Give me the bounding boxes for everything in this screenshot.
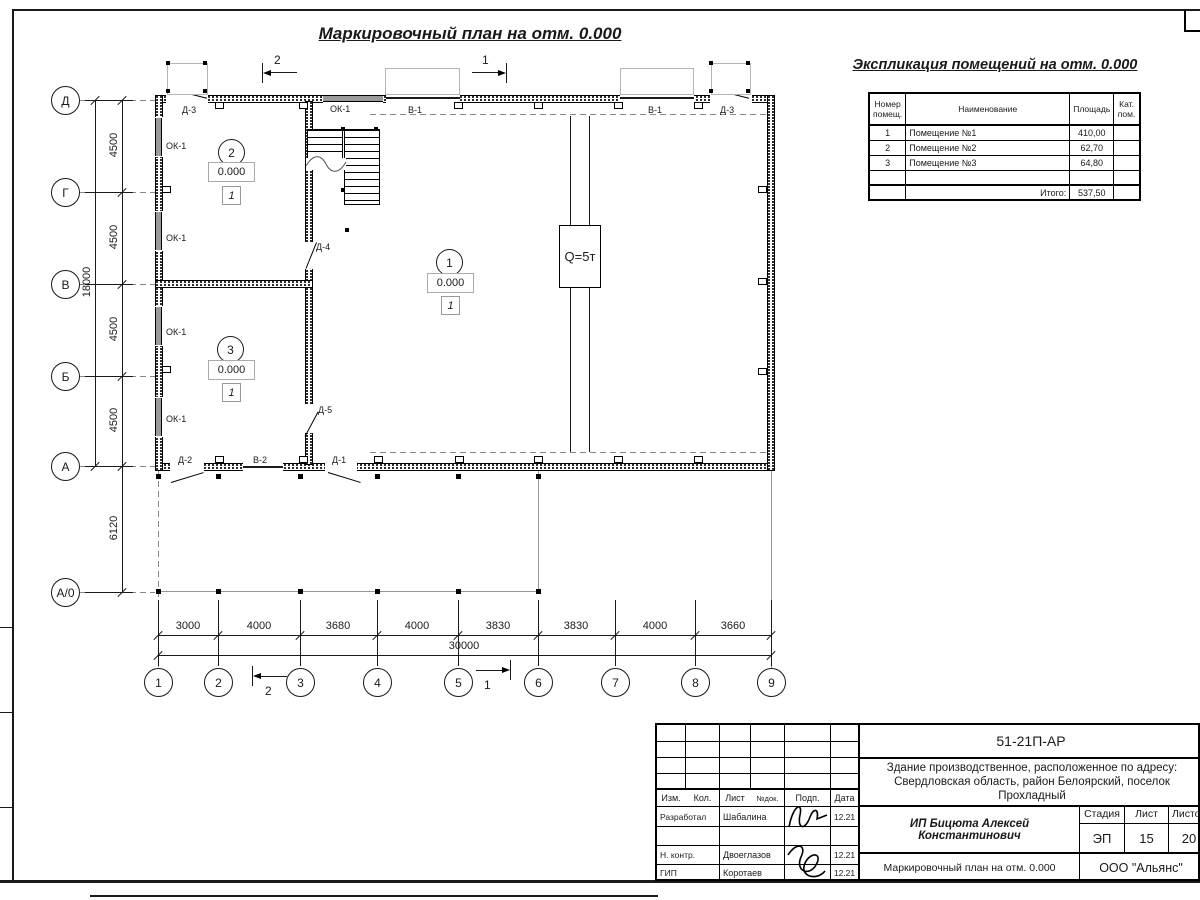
- room-elevation-2: 0.000: [208, 162, 255, 182]
- pilaster: [758, 278, 767, 285]
- corner-dot: [345, 228, 349, 232]
- axis-bubble-row: Г: [51, 178, 80, 207]
- dim-text: 3660: [711, 620, 755, 632]
- column: [536, 474, 541, 479]
- page-title: Маркировочный план на отм. 0.000: [310, 24, 630, 44]
- dim-extension: [85, 376, 133, 377]
- gate-opening-v1-a: [386, 94, 460, 104]
- cell-empty: [906, 170, 1070, 185]
- schedule-header-area: Площадь: [1070, 93, 1114, 125]
- corner-dot: [709, 89, 713, 93]
- dim-text: 4500: [108, 215, 120, 259]
- axis-bubble-col: 2: [204, 668, 233, 697]
- stage-label: Стадия: [1080, 805, 1124, 823]
- gate-leaf-v1-a: [386, 97, 460, 99]
- frame-left: [12, 9, 14, 883]
- signature: [783, 799, 831, 833]
- section-number: 2: [274, 53, 281, 67]
- axis-bubble-row: Б: [51, 362, 80, 391]
- crane-capacity-label: Q=5т: [565, 249, 596, 264]
- room-elevation-3: 0.000: [208, 360, 255, 380]
- dim-text: 3000: [166, 620, 210, 632]
- table-row: 1 Помещение №1 410,00: [869, 125, 1140, 140]
- room-floortype-2: 1: [222, 186, 241, 205]
- schedule-header-num: Номер помещ.: [869, 93, 906, 125]
- schedule-header-name: Наименование: [906, 93, 1070, 125]
- col-izm: Изм.: [657, 790, 685, 806]
- cell-name: Помещение №2: [906, 140, 1070, 155]
- cell-num: 1: [869, 125, 906, 140]
- column: [456, 474, 461, 479]
- table-row-empty: [869, 170, 1140, 185]
- pilaster: [758, 368, 767, 375]
- pilaster: [215, 102, 224, 109]
- stair-break-line: [305, 152, 347, 174]
- margin-cell-line: [0, 712, 13, 713]
- total-value: 537,50: [1070, 185, 1114, 200]
- pilaster: [614, 456, 623, 463]
- window-label-ok1: ОК-1: [166, 233, 186, 243]
- axis-bubble-col: 7: [601, 668, 630, 697]
- dim-line-horizontal-segments: [158, 635, 771, 636]
- dim-text: 3830: [554, 620, 598, 632]
- dim-text: 4500: [108, 307, 120, 351]
- porch: [711, 63, 751, 95]
- cell-empty: [1070, 170, 1114, 185]
- window-label-ok1: ОК-1: [166, 327, 186, 337]
- room-number-text: 2: [228, 146, 235, 160]
- cell-area: 410,00: [1070, 125, 1114, 140]
- axis-bubble-col: 3: [286, 668, 315, 697]
- elevation-text: 0.000: [218, 364, 246, 376]
- axis-bubble-col: 8: [681, 668, 710, 697]
- dim-extension: [85, 284, 133, 285]
- cell-cat: [1114, 155, 1140, 170]
- sheets-label: Листов: [1169, 805, 1200, 823]
- axis-bubble-row: В: [51, 270, 80, 299]
- section-number: 1: [484, 678, 491, 692]
- col-data: Дата: [831, 790, 858, 806]
- gate-leaf-v1-b: [620, 97, 694, 99]
- cell-area: 62,70: [1070, 140, 1114, 155]
- dim-line-vertical-segments: [122, 100, 123, 592]
- column: [216, 474, 221, 479]
- dim-text: 3680: [316, 620, 360, 632]
- cell-name: Помещение №3: [906, 155, 1070, 170]
- crane-symbol: Q=5т: [559, 225, 601, 288]
- object-name: ИП Бицюта Алексей Константинович: [860, 807, 1079, 852]
- cell-empty: [1114, 185, 1140, 200]
- door-label-d3: Д-3: [182, 105, 196, 115]
- dim-line-horizontal-total: [158, 655, 771, 656]
- elevation-text: 0.000: [218, 166, 246, 178]
- door-label-d1: Д-1: [332, 455, 346, 465]
- gate-label-v2: В-2: [253, 455, 267, 465]
- cell-name: Помещение №1: [906, 125, 1070, 140]
- frame-top: [13, 9, 1200, 11]
- pilaster: [758, 186, 767, 193]
- room-floortype-3: 1: [222, 383, 241, 402]
- cell-num: 3: [869, 155, 906, 170]
- corner-dot: [203, 89, 207, 93]
- table-row: 2 Помещение №2 62,70: [869, 140, 1140, 155]
- column: [298, 589, 303, 594]
- role-date: 12.21: [831, 865, 858, 881]
- cell-area: 64,80: [1070, 155, 1114, 170]
- role-label: Разработал: [657, 807, 722, 826]
- dim-text: 4500: [108, 398, 120, 442]
- window-ok1-left: [155, 118, 162, 156]
- gate-label-v1: В-1: [648, 105, 662, 115]
- room-number-1: 1: [436, 249, 463, 276]
- column: [456, 589, 461, 594]
- axis-bubble-col: 5: [444, 668, 473, 697]
- role-label: Н. контр.: [657, 846, 722, 864]
- door-label-d5: Д-5: [318, 405, 332, 415]
- section-mark-2-top: 2: [262, 55, 302, 85]
- porch: [167, 63, 208, 95]
- section-mark-1-top: 1: [472, 55, 512, 85]
- dim-text: 3830: [476, 620, 520, 632]
- sheet-value: 15: [1125, 824, 1168, 852]
- door-label-d4: Д-4: [316, 242, 330, 252]
- column: [216, 589, 221, 594]
- dim-text: 4000: [633, 620, 677, 632]
- window-label-ok1: ОК-1: [166, 414, 186, 424]
- gate-opening-v1-b: [620, 94, 694, 104]
- dim-text: 4000: [395, 620, 439, 632]
- col-ndok: №док.: [751, 790, 784, 806]
- cell-empty: [869, 170, 906, 185]
- sheets-value: 20: [1169, 824, 1200, 852]
- doc-number: 51-21П-АР: [860, 725, 1200, 757]
- col-kol: Кол.: [686, 790, 719, 806]
- floor-type-text: 1: [228, 190, 234, 202]
- elevation-text: 0.000: [437, 277, 465, 289]
- axis-bubble-row: А/0: [51, 578, 80, 607]
- gate-label-v1: В-1: [408, 105, 422, 115]
- axis-bubble-row: Д: [51, 86, 80, 115]
- pilaster: [215, 456, 224, 463]
- door-label-d2: Д-2: [178, 455, 192, 465]
- corner-dot: [341, 127, 345, 131]
- corner-dot: [166, 61, 170, 65]
- sheet-label: Лист: [1125, 805, 1168, 823]
- title-block: Изм. Кол. Лист №док. Подп. Дата Разработ…: [655, 723, 1200, 881]
- window-ok1-left: [155, 307, 162, 345]
- corner-dot: [374, 127, 378, 131]
- room-number-3: 3: [217, 336, 244, 363]
- door-label-d3: Д-3: [720, 105, 734, 115]
- pilaster: [454, 102, 463, 109]
- corner-dot: [746, 89, 750, 93]
- crane-zone-dashed-top: [370, 114, 768, 115]
- column: [375, 474, 380, 479]
- window-label-ok1: ОК-1: [166, 141, 186, 151]
- dim-extension: [85, 192, 133, 193]
- axis-bubble-col: 9: [757, 668, 786, 697]
- role-name: Двоеглазов: [720, 846, 787, 864]
- stage-value: ЭП: [1080, 824, 1124, 852]
- margin-cell-line: [0, 807, 13, 808]
- dim-text-total: 18000: [81, 260, 93, 304]
- pilaster: [694, 102, 703, 109]
- column: [375, 589, 380, 594]
- canopy-edge-line: [157, 591, 540, 592]
- role-date: 12.21: [831, 846, 858, 864]
- floor-type-text: 1: [228, 387, 234, 399]
- column: [156, 589, 161, 594]
- axis-bubble-col: 4: [363, 668, 392, 697]
- window-ok1-left: [155, 398, 162, 436]
- dim-text-total: 30000: [442, 640, 486, 652]
- sheet-title: Маркировочный план на отм. 0.000: [870, 854, 1069, 881]
- pilaster: [162, 366, 171, 373]
- corner-dot: [746, 61, 750, 65]
- dim-line-vertical-total: [95, 100, 96, 466]
- floor-type-text: 1: [447, 300, 453, 312]
- corner-dot: [166, 89, 170, 93]
- section-number: 2: [265, 684, 272, 698]
- schedule-title: Экспликация помещений на отм. 0.000: [845, 57, 1145, 73]
- door-swing-d2: [171, 472, 204, 483]
- pilaster: [614, 102, 623, 109]
- pilaster: [299, 102, 308, 109]
- role-name: Коротаев: [720, 865, 787, 881]
- corner-box: [1184, 10, 1200, 32]
- stair-flight-right: [344, 129, 380, 205]
- section-number: 1: [482, 53, 489, 67]
- table-row-total: Итого: 537,50: [869, 185, 1140, 200]
- room-floortype-1: 1: [441, 296, 460, 315]
- pilaster: [299, 456, 308, 463]
- cell-num: 2: [869, 140, 906, 155]
- wall-interior-horizontal: [155, 280, 313, 288]
- schedule-header-cat: Кат. пом.: [1114, 93, 1140, 125]
- cell-cat: [1114, 125, 1140, 140]
- margin-cell-line: [0, 627, 13, 628]
- project-description: Здание производственное, расположенное п…: [867, 759, 1197, 805]
- porch: [620, 68, 694, 95]
- door-opening-d3-right: [710, 94, 752, 104]
- pilaster: [374, 456, 383, 463]
- pilaster: [534, 102, 543, 109]
- corner-dot: [203, 61, 207, 65]
- cell-empty: [869, 185, 906, 200]
- corner-dot: [341, 188, 345, 192]
- porch: [385, 68, 460, 95]
- corner-dot: [709, 61, 713, 65]
- crane-zone-dashed-bottom: [370, 452, 768, 453]
- section-mark-1-bottom: 1: [476, 660, 516, 694]
- role-date: 12.21: [831, 807, 858, 826]
- pilaster: [534, 456, 543, 463]
- axis-bubble-row: А: [51, 452, 80, 481]
- pilaster: [694, 456, 703, 463]
- wall-right: [767, 95, 775, 471]
- company-name: ООО "Альянс": [1080, 854, 1200, 881]
- pilaster: [455, 456, 464, 463]
- window-label-ok1: ОК-1: [330, 104, 350, 114]
- table-row: 3 Помещение №3 64,80: [869, 155, 1140, 170]
- cell-cat: [1114, 140, 1140, 155]
- total-label: Итого:: [906, 185, 1070, 200]
- axis-line-6-extension: [538, 471, 539, 592]
- room-elevation-1: 0.000: [427, 273, 474, 293]
- dim-extension: [85, 592, 133, 593]
- column: [536, 589, 541, 594]
- axis-bubble-col: 1: [144, 668, 173, 697]
- col-list: Лист: [720, 790, 750, 806]
- window-ok1-top: [323, 95, 383, 102]
- room-schedule-table: Номер помещ. Наименование Площадь Кат. п…: [868, 92, 1141, 201]
- window-ok1-left: [155, 212, 162, 250]
- room-number-text: 3: [227, 343, 234, 357]
- gate-leaf-v2: [243, 466, 283, 468]
- drawing-sheet: Маркировочный план на отм. 0.000 Эксплик…: [0, 0, 1200, 900]
- cell-empty: [1114, 170, 1140, 185]
- pilaster: [162, 186, 171, 193]
- sheet-edge-line: [90, 895, 658, 897]
- role-label: ГИП: [657, 865, 722, 881]
- column: [298, 474, 303, 479]
- axis-bubble-col: 6: [524, 668, 553, 697]
- signature: [783, 837, 831, 883]
- door-swing-d1: [328, 472, 361, 483]
- dim-text: 6120: [108, 506, 120, 550]
- column: [156, 474, 161, 479]
- dim-text: 4000: [237, 620, 281, 632]
- room-number-text: 1: [446, 256, 453, 270]
- dim-text: 4500: [108, 123, 120, 167]
- role-name: Шабалина: [720, 807, 787, 826]
